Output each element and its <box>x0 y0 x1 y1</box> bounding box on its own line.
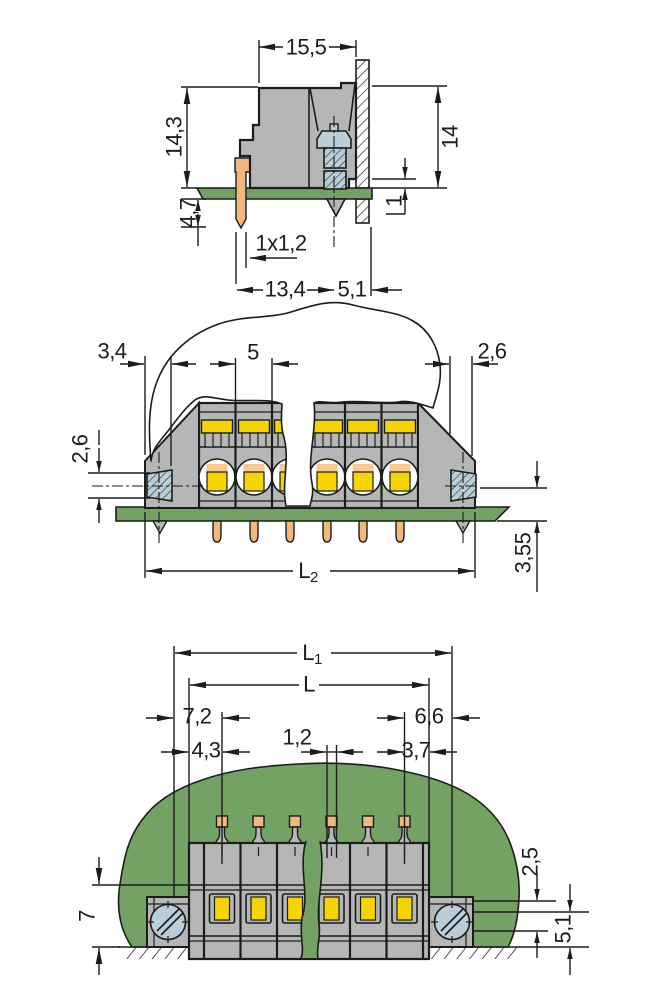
dim-left-outer: 7,2 <box>182 704 211 729</box>
technical-drawing-page: 15,5 14,3 4,7 14 1 <box>0 0 646 1000</box>
dim-pitch: 5 <box>247 340 259 365</box>
connector-dimension-drawing: 15,5 14,3 4,7 14 1 <box>0 0 646 1000</box>
dim-pin-section: 1x1,2 <box>255 231 307 256</box>
mounting-flange-right <box>429 897 473 947</box>
front-view: 3,4 5 2,6 2,6 3,55 <box>68 303 548 592</box>
dim-pin-drop: 3,55 <box>511 532 536 573</box>
dim-screw-height: 2,6 <box>68 434 93 463</box>
screw-shaft-hatch <box>324 148 346 168</box>
dim-length-a: 13,4 <box>265 277 306 302</box>
dim-height-right: 14 <box>438 125 463 149</box>
dim-body-length: L <box>303 672 315 697</box>
dim-height-left: 14,3 <box>162 116 187 157</box>
dim-right-outer: 6,6 <box>414 704 443 729</box>
dim-overall-length: L1 <box>302 640 322 668</box>
snap-foot-left <box>153 521 167 533</box>
side-view: 15,5 14,3 4,7 14 1 <box>162 35 463 302</box>
mounting-flange-left <box>147 897 189 947</box>
dim-end-left: 3,4 <box>97 339 126 364</box>
dim-width-top: 15,5 <box>286 35 327 60</box>
dim-total-length: L2 <box>298 558 318 586</box>
clamp-screw-hatch <box>324 171 346 189</box>
dim-height: 7 <box>75 910 100 922</box>
dim-left-inner: 4,3 <box>191 738 220 763</box>
break-band <box>301 841 322 958</box>
dim-offset-top: 2,5 <box>518 847 543 876</box>
dim-end-right: 2,6 <box>477 339 506 364</box>
dim-below-board: 4,7 <box>176 198 201 227</box>
snap-foot-side <box>327 199 345 216</box>
dim-right-inner: 3,7 <box>401 738 430 763</box>
dim-length-b: 5,1 <box>337 277 366 302</box>
dim-offset-bottom: 5,1 <box>551 914 576 943</box>
mounted-view: L1 L 7,2 6,6 4,3 1,2 3,7 <box>75 640 590 976</box>
pcb-front <box>116 507 509 521</box>
dim-panel-step: 1 <box>382 195 407 207</box>
dim-pin-width: 1,2 <box>282 725 311 750</box>
solder-pins-front <box>213 521 404 542</box>
